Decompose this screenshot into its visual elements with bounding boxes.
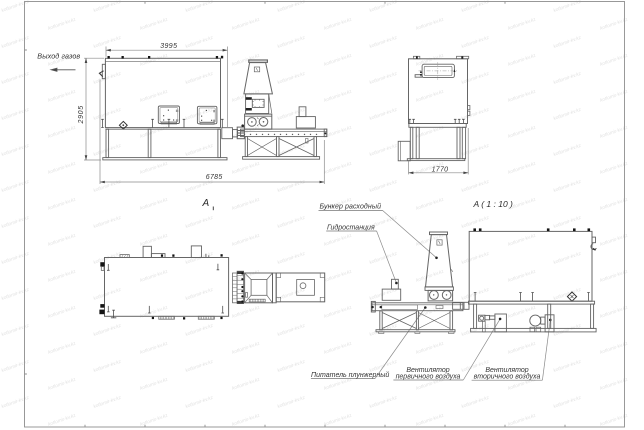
svg-text:2905: 2905 [78,105,85,124]
svg-text:Гидростанция: Гидростанция [327,223,375,231]
svg-text:Бункер расходный: Бункер расходный [320,203,382,211]
svg-text:вторичного воздуха: вторичного воздуха [474,372,541,380]
svg-text:A ( 1 : 10 ): A ( 1 : 10 ) [473,199,514,209]
svg-text:3995: 3995 [160,43,177,50]
svg-text:6785: 6785 [206,174,223,181]
svg-text:1770: 1770 [432,166,449,173]
svg-text:Выход газов: Выход газов [37,52,80,61]
svg-text:A: A [202,198,210,209]
svg-text:первичного воздуха: первичного воздуха [396,372,461,380]
